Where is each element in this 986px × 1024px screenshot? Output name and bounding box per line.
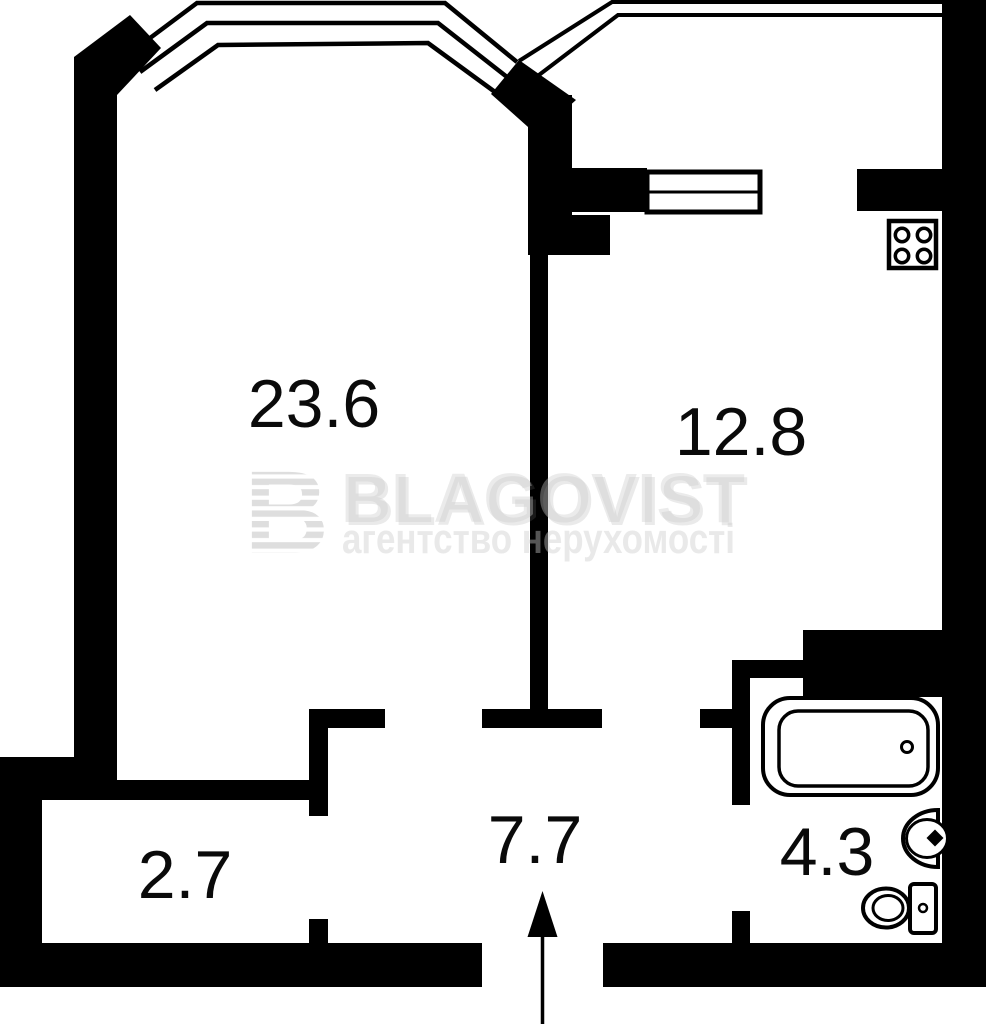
watermark-logo: B [244, 447, 329, 579]
kitchen-window [647, 172, 760, 212]
wall-bathroom-left [732, 660, 750, 805]
stove-burner [917, 249, 930, 262]
entrance-arrow-icon [528, 891, 558, 1024]
wall-storage-right-vertical [309, 709, 328, 816]
wall-kitchen-top-right [857, 169, 943, 211]
watermark: B BLAGOVIST BLAGOVIST агентство нерухомо… [244, 447, 748, 579]
wall-hall-header [482, 709, 602, 728]
terrace-railing-lines [519, 2, 942, 78]
sink-icon [903, 810, 948, 867]
bay-window-lines [130, 3, 517, 92]
wall-center-upper [528, 95, 572, 215]
stove-burner [917, 228, 930, 241]
room-label-hallway: 7.7 [488, 802, 583, 878]
room-label-living: 23.6 [248, 366, 380, 442]
wall-hall-right-piece [700, 709, 750, 728]
floor-plan-svg: 23.6 12.8 7.7 2.7 4.3 B BLAGOVIST BLAGOV… [0, 0, 986, 1024]
toilet-icon [863, 884, 936, 933]
wall-topleft-diagonal [74, 15, 161, 95]
floor-plan-page: 23.6 12.8 7.7 2.7 4.3 B BLAGOVIST BLAGOV… [0, 0, 986, 1024]
bay-window-line-inner [155, 43, 495, 92]
toilet-bowl-inner [873, 896, 903, 921]
wall-left [74, 95, 117, 780]
entrance-arrow-head [528, 891, 558, 937]
watermark-tagline: агентство нерухомості [342, 515, 735, 562]
room-label-bathroom: 4.3 [780, 814, 875, 890]
terrace-line-inner [535, 15, 942, 78]
stove-burner [895, 228, 908, 241]
wall-storage-top [42, 780, 309, 800]
wall-bathroom-top [803, 630, 943, 697]
bathtub-drain [902, 742, 913, 753]
wall-bottom-right [603, 943, 986, 987]
wall-kitchen-top-left [572, 168, 647, 212]
wall-center-step [528, 215, 610, 255]
stove-icon [889, 221, 936, 268]
bay-window-line-outer [130, 3, 517, 62]
bathtub-icon [763, 698, 938, 795]
bay-window-line-middle [140, 23, 507, 77]
wall-storage-right-stub [309, 919, 328, 945]
stove-burner [895, 249, 908, 262]
room-label-storage: 2.7 [138, 837, 233, 913]
toilet-button [919, 904, 927, 912]
terrace-line-outer [519, 2, 942, 61]
wall-bathroom-left-stub [732, 911, 750, 943]
wall-bottom-left [0, 943, 482, 987]
